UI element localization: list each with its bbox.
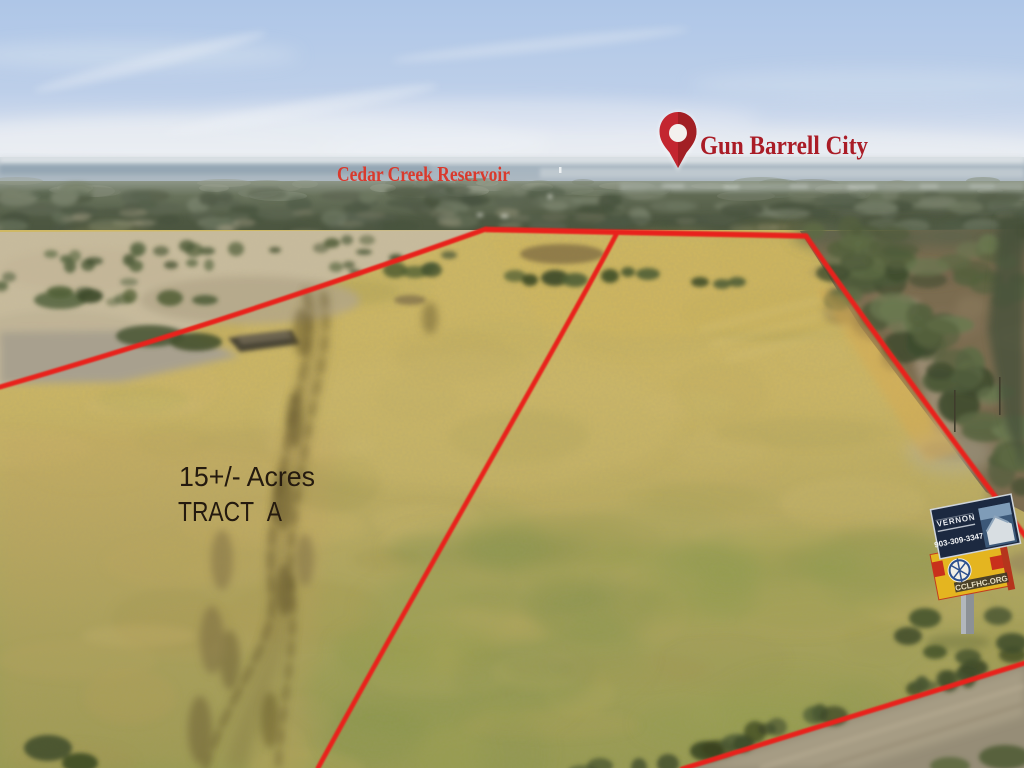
svg-text:Gun Barrell City: Gun Barrell City	[700, 131, 868, 160]
svg-text:Cedar Creek Reservoir: Cedar Creek Reservoir	[337, 162, 510, 186]
svg-text:15+/- Acres: 15+/- Acres	[179, 461, 315, 492]
svg-text:TRACT A: TRACT A	[178, 496, 282, 527]
